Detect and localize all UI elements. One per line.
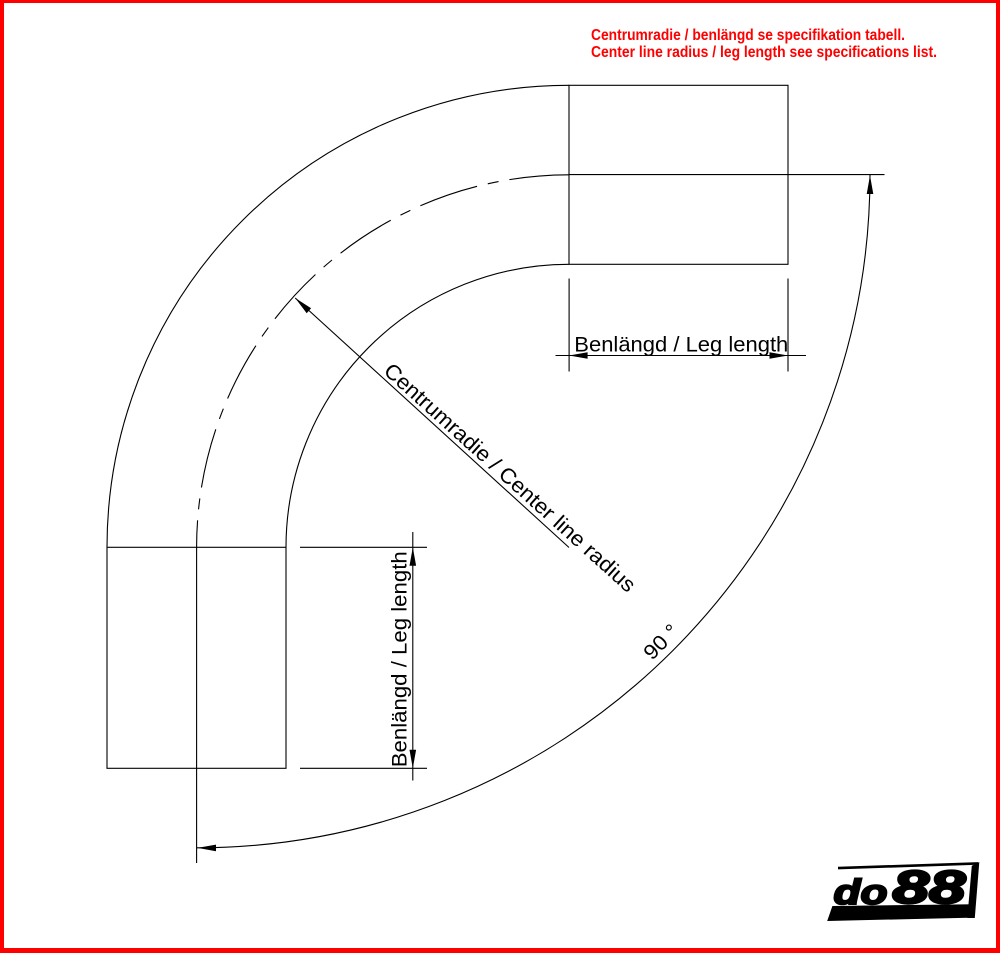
svg-text:Benlängd / Leg length: Benlängd / Leg length (574, 332, 788, 356)
svg-text:Benlängd / Leg length: Benlängd / Leg length (388, 551, 412, 767)
svg-text:88: 88 (893, 861, 967, 913)
svg-text:do: do (834, 873, 888, 912)
svg-text:Centrumradie / benlängd se spe: Centrumradie / benlängd se specifikation… (591, 27, 905, 44)
svg-text:Center line radius / leg lengt: Center line radius / leg length see spec… (591, 44, 937, 61)
